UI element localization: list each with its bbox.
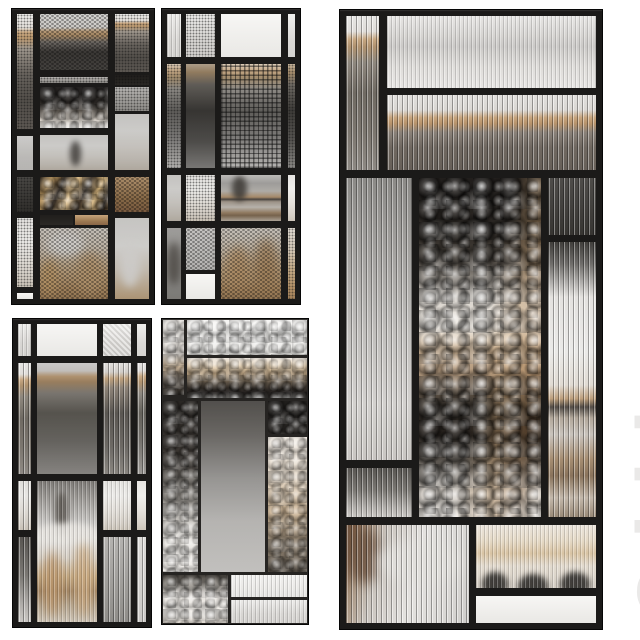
glass-pane (167, 64, 181, 168)
glass-pane (17, 293, 33, 299)
glass-pane (476, 525, 596, 588)
glass-pane (115, 218, 149, 299)
glass-pane (40, 135, 108, 170)
glass-pane (103, 363, 131, 474)
glass-pane (288, 228, 295, 299)
glass-pane (419, 178, 541, 517)
glass-pane (103, 324, 131, 356)
blurred-scene-shape (560, 572, 590, 588)
glass-partition-top-left (11, 8, 155, 305)
glass-pane (288, 14, 295, 57)
glass-pane (221, 64, 281, 168)
render-canvas: 3ddd (0, 0, 640, 640)
glass-pane (37, 363, 97, 474)
glass-pane (387, 95, 596, 170)
glass-pane (17, 218, 33, 287)
glass-pane (40, 14, 108, 70)
blurred-scene-shape (232, 176, 248, 201)
glass-partition-large-right (339, 9, 603, 630)
watermark-text: 3ddd (625, 405, 640, 625)
blurred-scene-shape (73, 544, 94, 615)
glass-pane (40, 87, 108, 128)
glass-pane (346, 468, 412, 517)
glass-partition-bottom-left (12, 318, 152, 628)
glass-pane (346, 525, 469, 623)
glass-pane (40, 215, 73, 225)
blurred-scene-shape (70, 141, 81, 166)
blurred-scene-shape (254, 239, 278, 289)
glass-pane (186, 14, 215, 57)
glass-pane (103, 537, 131, 622)
blurred-scene-shape (518, 574, 548, 588)
glass-pane (221, 228, 281, 299)
blurred-scene-shape (47, 232, 84, 257)
blurred-scene-shape (167, 242, 181, 285)
glass-pane (17, 136, 33, 170)
glass-pane (163, 575, 228, 623)
blurred-scene-shape (37, 523, 97, 543)
glass-pane (115, 114, 149, 170)
glass-pane (476, 596, 596, 623)
glass-pane (346, 178, 412, 460)
glass-pane (167, 228, 181, 299)
glass-pane (18, 324, 31, 356)
glass-pane (167, 175, 181, 221)
glass-pane (37, 481, 97, 622)
blurred-scene-shape (346, 525, 380, 584)
glass-pane (268, 437, 307, 572)
glass-partition-bottom-middle (161, 318, 309, 625)
glass-pane (18, 481, 31, 530)
glass-pane (186, 64, 215, 168)
glass-pane (18, 363, 31, 474)
glass-pane (221, 14, 281, 57)
glass-pane (17, 14, 33, 129)
glass-pane (17, 177, 33, 212)
glass-pane (137, 537, 146, 622)
glass-pane (268, 401, 307, 434)
glass-pane (186, 175, 215, 221)
glass-pane (186, 274, 215, 299)
glass-pane (137, 481, 146, 530)
glass-pane (387, 16, 596, 88)
glass-pane (37, 324, 97, 356)
glass-pane (115, 14, 149, 72)
glass-pane (187, 320, 307, 355)
glass-pane (103, 481, 131, 530)
glass-pane (548, 242, 596, 517)
glass-pane (163, 320, 184, 395)
glass-pane (40, 228, 108, 299)
glass-pane (288, 175, 295, 221)
glass-pane (115, 75, 149, 85)
glass-pane (548, 178, 596, 235)
glass-pane (137, 363, 146, 474)
glass-pane (221, 175, 281, 221)
blurred-scene-shape (42, 552, 63, 615)
blurred-scene-shape (41, 260, 58, 296)
blurred-scene-shape (120, 242, 140, 287)
glass-pane (201, 401, 265, 572)
glass-pane (115, 87, 149, 111)
blurred-scene-shape (482, 572, 508, 588)
glass-pane (231, 600, 307, 623)
glass-pane (75, 215, 108, 225)
glass-pane (186, 228, 215, 270)
blurred-scene-shape (377, 540, 463, 584)
glass-pane (167, 14, 181, 57)
glass-partition-top-middle (161, 8, 301, 305)
glass-pane (115, 177, 149, 212)
glass-pane (288, 64, 295, 168)
glass-pane (18, 537, 31, 622)
blurred-scene-shape (77, 253, 103, 296)
glass-pane (231, 575, 307, 597)
glass-pane (40, 77, 108, 83)
glass-pane (187, 358, 307, 398)
glass-pane (137, 324, 146, 356)
blurred-scene-shape (226, 246, 250, 289)
glass-pane (346, 16, 379, 170)
glass-pane (163, 401, 198, 572)
glass-pane (40, 177, 108, 210)
